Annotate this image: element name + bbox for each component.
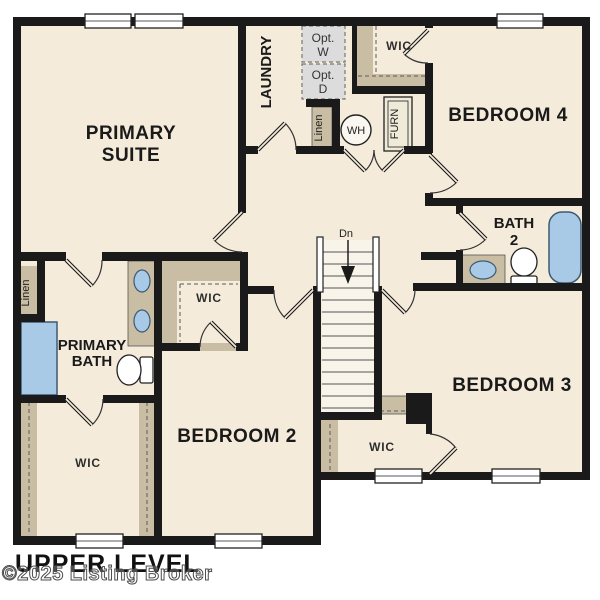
opt-washer-label: Opt. <box>312 31 335 45</box>
primary-bath-label: PRIMARY <box>58 337 127 354</box>
linen-hall-label: Linen <box>20 280 32 307</box>
bath2-label: 2 <box>510 232 518 249</box>
stairs-down-label: Dn <box>339 228 353 240</box>
shower <box>21 322 57 395</box>
wic-mid-label: WIC <box>196 291 222 305</box>
sink <box>470 261 496 279</box>
primary-bath-label: BATH <box>72 353 113 370</box>
floor-plan-page: PRIMARY SUITE LAUNDRY Opt. W Opt. D WIC … <box>0 0 600 600</box>
linen-laundry-label: Linen <box>313 115 325 142</box>
wic-bottom-right-label: WIC <box>369 440 395 454</box>
bedroom4-label: BEDROOM 4 <box>448 105 568 126</box>
bathtub <box>549 212 581 283</box>
bedroom2-label: BEDROOM 2 <box>177 426 297 447</box>
laundry-label: LAUNDRY <box>258 36 275 109</box>
watermark: ©2025 Listing Broker <box>2 563 212 585</box>
wic-top-label: WIC <box>386 39 412 53</box>
opt-dryer-label: D <box>319 82 328 96</box>
wic-bottom-left-label: WIC <box>75 456 101 470</box>
primary-suite-label: PRIMARY <box>86 123 176 144</box>
bath2-label: BATH <box>494 215 535 232</box>
furnace-label: FURN <box>389 109 401 140</box>
toilet-bowl <box>117 355 141 385</box>
floor-plan-drawing: PRIMARY SUITE LAUNDRY Opt. W Opt. D WIC … <box>0 0 600 600</box>
opt-washer-label: W <box>317 45 329 59</box>
opt-dryer-label: Opt. <box>312 68 335 82</box>
primary-suite-label: SUITE <box>102 145 160 166</box>
bedroom3-label: BEDROOM 3 <box>452 375 572 396</box>
toilet-tank <box>140 357 153 383</box>
sink <box>134 270 150 292</box>
water-heater-label: WH <box>347 125 365 137</box>
sink <box>134 310 150 332</box>
toilet-bowl <box>511 248 537 276</box>
